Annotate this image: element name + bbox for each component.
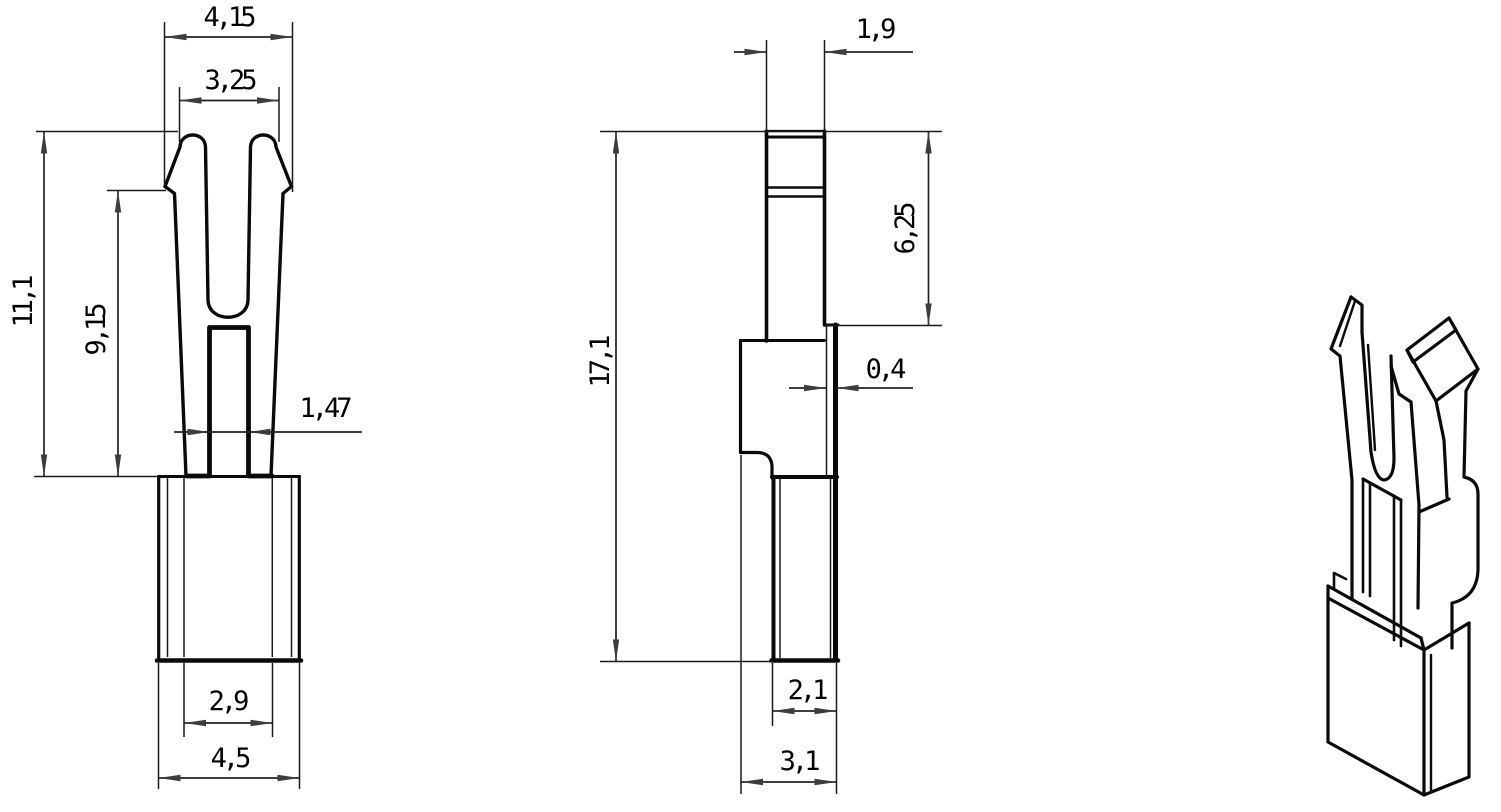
- iso-right-profile: [1452, 369, 1478, 648]
- dimension-front-slot-width: 1,47: [174, 393, 362, 432]
- dim-text-front-top-width: 4,15: [203, 2, 255, 33]
- dim-text-side-blade-length: 6,25: [890, 203, 921, 255]
- dim-text-front-tip-width: 3,25: [204, 65, 256, 96]
- dim-text-front-body-inner-width: 2,9: [209, 686, 249, 717]
- dimension-front-tip-width: 3,25: [180, 65, 280, 101]
- iso-box-right-top-edge: [1424, 623, 1469, 650]
- dim-text-front-slot-height: 9,15: [81, 304, 112, 356]
- dim-text-side-overall-width: 3,1: [780, 746, 820, 777]
- dimension-front-top-width: 4,15: [165, 2, 293, 37]
- front-view-fork-outline: [165, 135, 292, 317]
- dimension-side-barrel-width: 2,1: [773, 675, 837, 711]
- dimension-side-total-length: 17,1: [585, 132, 616, 662]
- dimension-side-material-thickness: 0,4: [789, 354, 913, 388]
- iso-right-tip-thickness: [1407, 318, 1456, 362]
- dimension-front-fork-height: 11,1: [8, 132, 44, 477]
- iso-slot-u: [1362, 332, 1394, 480]
- ext-lines-side: [600, 40, 942, 794]
- iso-box-outline: [1328, 586, 1469, 795]
- dimension-front-body-width: 4,5: [159, 743, 300, 778]
- dim-text-side-blade-width: 1,9: [856, 14, 896, 45]
- dim-text-side-material-thickness: 0,4: [866, 354, 906, 385]
- iso-right-tip-notch: [1391, 366, 1411, 402]
- iso-box-rim-front: [1328, 598, 1424, 650]
- technical-drawing-page: 4,15 3,25 11,1 9,15 1,47 2,9: [0, 0, 1501, 812]
- iso-right-strip-left-edge: [1411, 402, 1419, 608]
- iso-right-strip-right-edge: [1436, 401, 1447, 497]
- iso-box-left-ledge: [1334, 573, 1346, 589]
- dimension-front-slot-height: 9,15: [81, 191, 118, 477]
- iso-right-strip-step: [1419, 499, 1449, 512]
- dimension-side-blade-length: 6,25: [890, 132, 929, 326]
- iso-box-rim-top: [1328, 586, 1421, 638]
- dim-text-front-slot-width: 1,47: [299, 393, 351, 424]
- isometric-view: [1328, 297, 1478, 795]
- dim-text-side-barrel-width: 2,1: [788, 675, 828, 706]
- dim-text-front-body-width: 4,5: [211, 743, 251, 774]
- terminal-drawing-svg: 4,15 3,25 11,1 9,15 1,47 2,9: [0, 0, 1501, 812]
- iso-left-prong-front: [1351, 297, 1362, 332]
- dim-text-front-fork-height: 11,1: [8, 276, 39, 328]
- dimension-front-body-inner-width: 2,9: [184, 686, 273, 723]
- side-view-wing-step: [741, 453, 773, 479]
- dim-text-side-total-length: 17,1: [585, 336, 616, 388]
- dimension-side-overall-width: 3,1: [741, 746, 837, 782]
- side-view: 1,9 6,25 17,1 0,4 2,1 3,1: [585, 14, 942, 794]
- front-view-slot-window: [187, 328, 272, 477]
- dimension-side-blade-width: 1,9: [734, 14, 913, 52]
- front-view: 4,15 3,25 11,1 9,15 1,47 2,9: [8, 2, 362, 789]
